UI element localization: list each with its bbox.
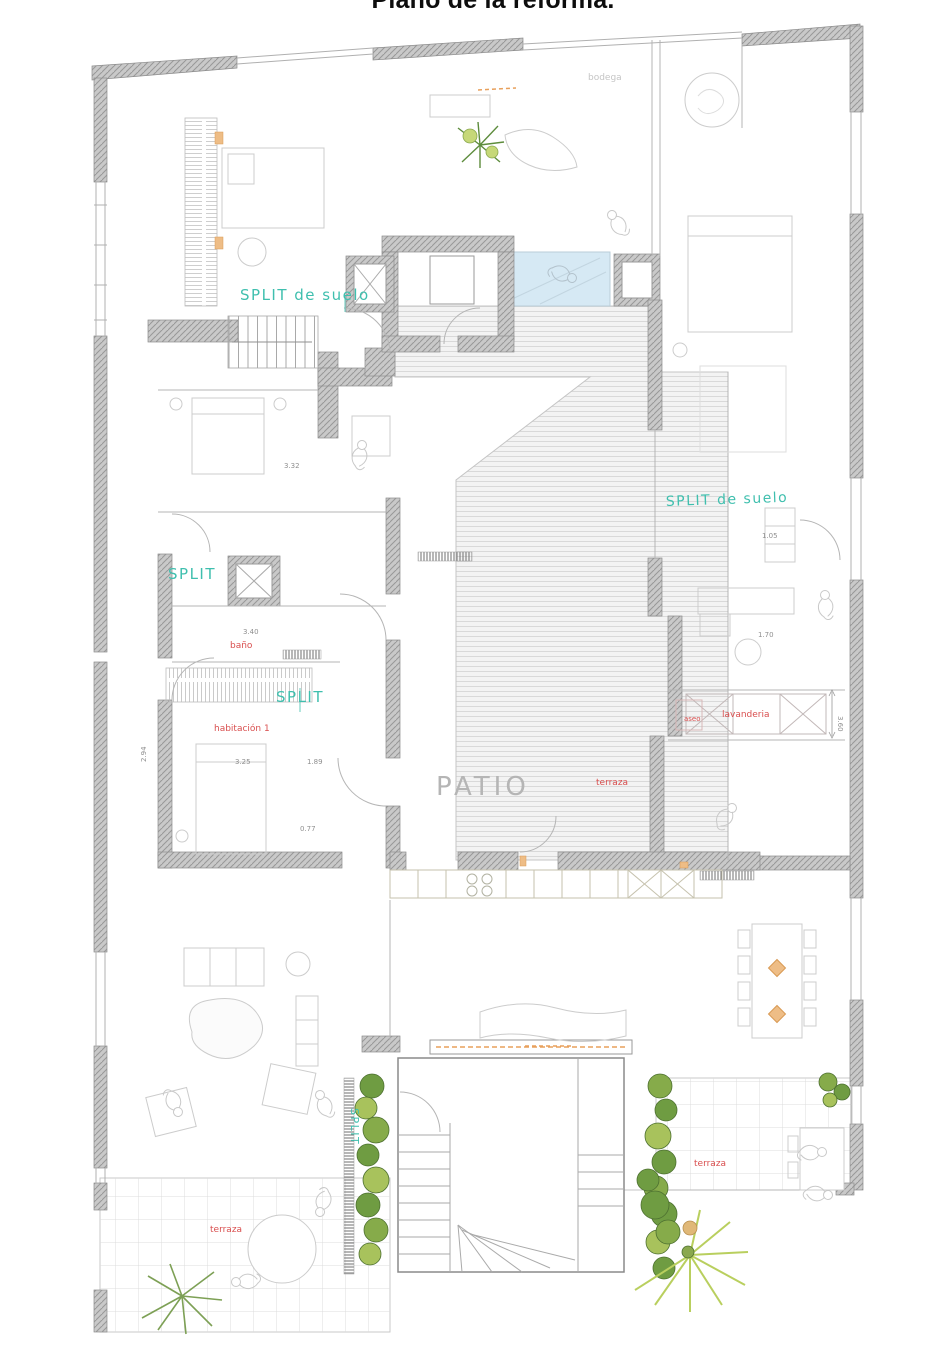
label-bedroom1: habitación 1 xyxy=(214,723,270,734)
bench xyxy=(430,95,490,117)
floor-plan-drawing: PATIO SPLIT de suelo SPLIT de suelo SPLI… xyxy=(0,0,948,1360)
bed-bedroom1 xyxy=(176,744,266,854)
palm-top-centre xyxy=(458,122,504,168)
dim-bathroom: 3.40 xyxy=(243,628,259,636)
cabinet-x xyxy=(628,870,694,898)
dim-corridor: 0.77 xyxy=(300,825,316,833)
dim-bedroom1-left: 2.94 xyxy=(140,746,148,762)
bed-bedroom2 xyxy=(170,398,286,474)
pool xyxy=(506,252,610,306)
dim-laundry: 3.60 xyxy=(836,716,844,732)
label-terrace-left: terraza xyxy=(210,1225,242,1235)
label-toilet: aseo xyxy=(684,715,701,723)
label-split-closet: SPLIT xyxy=(276,688,324,706)
label-bathroom: baño xyxy=(230,641,253,651)
dining-table xyxy=(738,924,816,1038)
stove-burners xyxy=(467,874,492,896)
dim-bedroom2: 3.32 xyxy=(284,462,300,470)
desk xyxy=(352,416,390,456)
wardrobes xyxy=(166,118,312,702)
label-split-radiator: SPLIT xyxy=(348,1108,361,1145)
table-decor-diamonds xyxy=(769,960,786,1023)
label-storage: bodega xyxy=(588,73,622,83)
floor-plan-page: Plano de la reforma. xyxy=(0,0,948,1360)
terrace-round-table xyxy=(248,1215,316,1283)
bed-top-left xyxy=(222,148,324,266)
dim-hall: 1.89 xyxy=(307,758,323,766)
label-laundry: lavanderia xyxy=(722,710,770,720)
dim-closet: 1.70 xyxy=(758,631,774,639)
tree-outline xyxy=(685,73,739,127)
label-patio: PATIO xyxy=(436,772,530,802)
page-title: Plano de la reforma. xyxy=(0,0,948,15)
bottom-central-room xyxy=(398,1040,632,1272)
corridor-blob xyxy=(480,1004,626,1042)
label-terrace-patio: terraza xyxy=(596,778,628,788)
dim-cabinet: 1.05 xyxy=(762,532,778,540)
label-split-floor-right: SPLIT de suelo xyxy=(666,490,789,510)
living-room-furniture xyxy=(146,948,318,1136)
label-split-shaft: SPLIT xyxy=(168,565,216,583)
label-terrace-right: terraza xyxy=(694,1159,726,1169)
stairs-top xyxy=(228,316,318,368)
lounge-blob xyxy=(505,129,577,170)
label-split-floor-left: SPLIT de suelo xyxy=(240,286,370,304)
dim-bedroom1-width: 3.25 xyxy=(235,758,251,766)
